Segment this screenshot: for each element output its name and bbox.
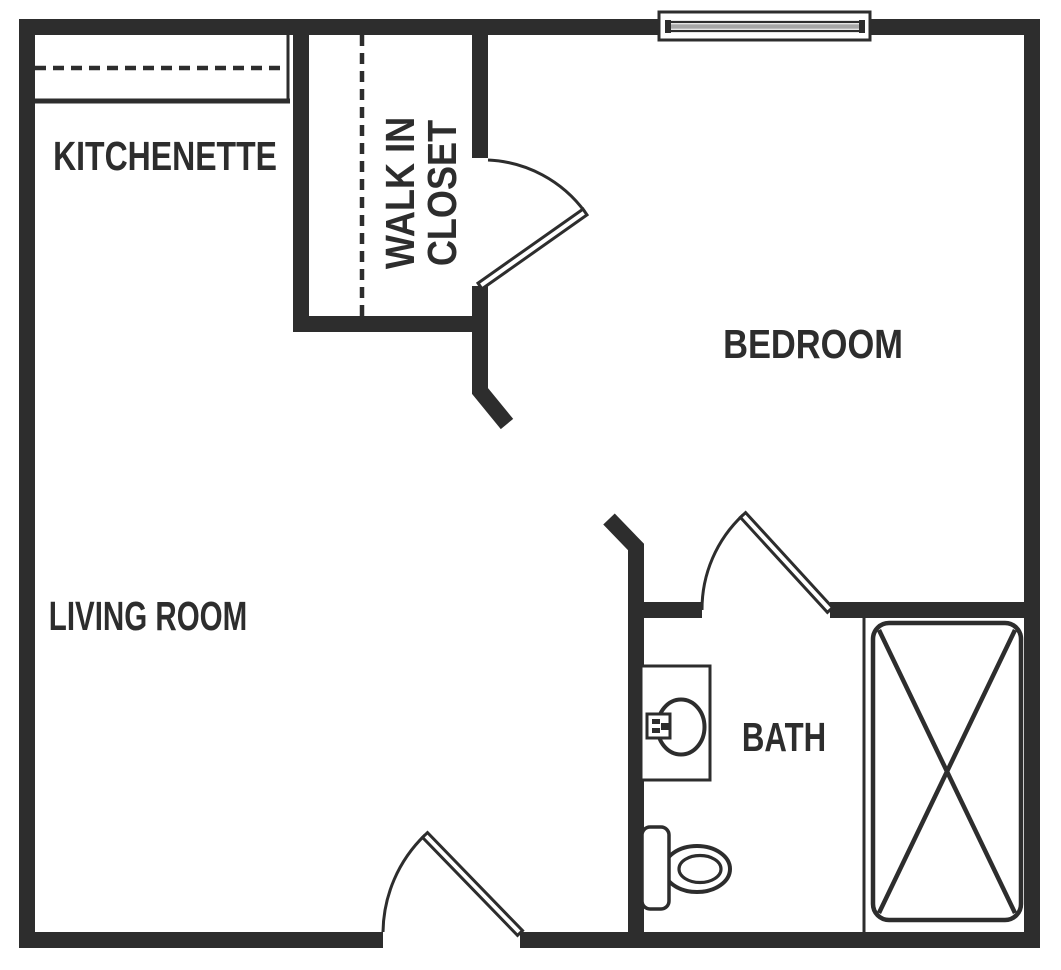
bath-west-wall <box>609 519 636 948</box>
closet-door-leaf <box>478 209 587 289</box>
closet-door-arc <box>488 160 585 212</box>
window-end-cap-right <box>859 20 865 33</box>
bathroom-door-leaf <box>740 513 832 613</box>
room-label-kitchenette: KITCHENETTE <box>53 136 277 178</box>
floor-plan: KITCHENETTE WALK IN CLOSET BEDROOM LIVIN… <box>0 0 1061 970</box>
toilet-tank <box>642 827 669 909</box>
window-end-cap-left <box>665 20 671 33</box>
entry-door-leaf <box>423 833 523 936</box>
doors <box>383 160 833 935</box>
entry-door-arc <box>383 835 425 932</box>
room-label-bedroom: BEDROOM <box>723 324 903 366</box>
room-label-bath: BATH <box>742 717 826 759</box>
room-label-walk-in-closet: WALK IN CLOSET <box>380 117 464 269</box>
closet-east-wall-lower-stub <box>480 286 507 424</box>
kitchenette-counter <box>34 34 290 101</box>
faucet-handle-bottom <box>652 728 660 733</box>
bath-fixtures <box>641 623 1021 920</box>
window <box>659 12 870 40</box>
bathroom-door-arc <box>702 515 743 610</box>
room-label-living-room: LIVING ROOM <box>49 596 247 638</box>
faucet-handle-top <box>652 719 660 724</box>
faucet-spout <box>661 723 671 730</box>
